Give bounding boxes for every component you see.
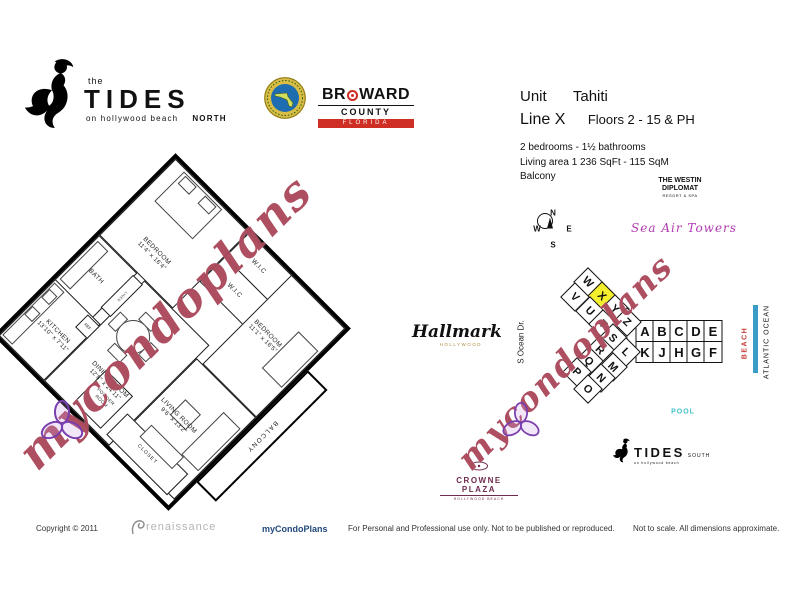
tides-tagline: on hollywood beach xyxy=(86,114,178,123)
hallmark-logo: Hallmark HOLLYWOOD xyxy=(412,324,482,347)
pool-label: POOL xyxy=(671,409,695,416)
broward-county-label: COUNTY xyxy=(318,105,414,117)
broward-text-right: WARD xyxy=(359,86,410,104)
copyright-label: Copyright © 2011 xyxy=(36,524,98,533)
unit-label: Unit xyxy=(520,88,547,105)
renaissance-flourish-icon xyxy=(130,518,146,536)
map-unit-H: H xyxy=(670,341,689,363)
broward-county-logo: BR WARD COUNTY FLORIDA xyxy=(318,86,414,128)
map-unit-M: M xyxy=(598,352,628,382)
beach-bar xyxy=(753,305,758,373)
sea-air-towers-label: Sea Air Towers xyxy=(631,221,737,235)
map-unit-G: G xyxy=(687,341,706,363)
scale-note-label: Not to scale. All dimensions approximate… xyxy=(633,524,779,533)
map-unit-N: N xyxy=(586,363,616,393)
unit-info: Unit Tahiti Line X Floors 2 - 15 & PH 2 … xyxy=(520,88,780,185)
broward-sun-icon xyxy=(347,90,358,101)
map-unit-O: O xyxy=(573,374,603,404)
map-unit-J: J xyxy=(653,341,672,363)
tides-south-logo: TIDES SOUTH on hollywood beach xyxy=(612,438,710,471)
mermaid-icon xyxy=(612,438,632,471)
county-seal-icon xyxy=(263,76,307,125)
renaissance-logo: renaissance xyxy=(130,518,216,536)
map-unit-B: B xyxy=(653,320,672,342)
disclaimer-label: For Personal and Professional use only. … xyxy=(348,524,615,533)
s-ocean-dr-label: S Ocean Dr. xyxy=(517,320,526,364)
trillium-flower-icon xyxy=(500,402,542,449)
map-unit-L: L xyxy=(611,337,641,367)
map-unit-V: V xyxy=(560,282,590,312)
bedrooms-label: 2 bedrooms - 1½ bathrooms xyxy=(520,141,780,156)
broward-florida-label: FLORIDA xyxy=(318,119,414,128)
floors-label: Floors 2 - 15 & PH xyxy=(588,112,695,127)
westin-diplomat-label: THE WESTIN DIPLOMAT RESORT & SPA xyxy=(645,177,715,199)
trillium-flower-icon xyxy=(38,400,86,453)
map-unit-K: K xyxy=(636,341,655,363)
tides-north-logo: the TIDES on hollywood beach NORTH xyxy=(22,58,227,143)
living-area-label: Living area 1 236 SqFt - 115 SqM xyxy=(520,156,780,171)
map-unit-W: W xyxy=(573,267,603,297)
mycondoplans-brand: myCondoPlans xyxy=(262,524,328,534)
broward-text-left: BR xyxy=(322,86,346,104)
map-unit-A: A xyxy=(636,320,655,342)
compass-e: E xyxy=(566,225,571,234)
map-unit-C: C xyxy=(670,320,689,342)
beach-label: BEACH xyxy=(742,327,749,359)
map-unit-E: E xyxy=(704,320,723,342)
line-label: Line X xyxy=(520,111,565,128)
compass-s: S xyxy=(550,241,555,250)
atlantic-ocean-label: ATLANTIC OCEAN xyxy=(764,305,771,379)
tides-region: NORTH xyxy=(192,114,226,123)
map-unit-D: D xyxy=(687,320,706,342)
mermaid-icon xyxy=(22,58,80,143)
tides-name: TIDES xyxy=(84,86,227,112)
map-unit-F: F xyxy=(704,341,723,363)
compass-arrow-icon xyxy=(547,218,553,229)
unit-name: Tahiti xyxy=(573,88,608,105)
